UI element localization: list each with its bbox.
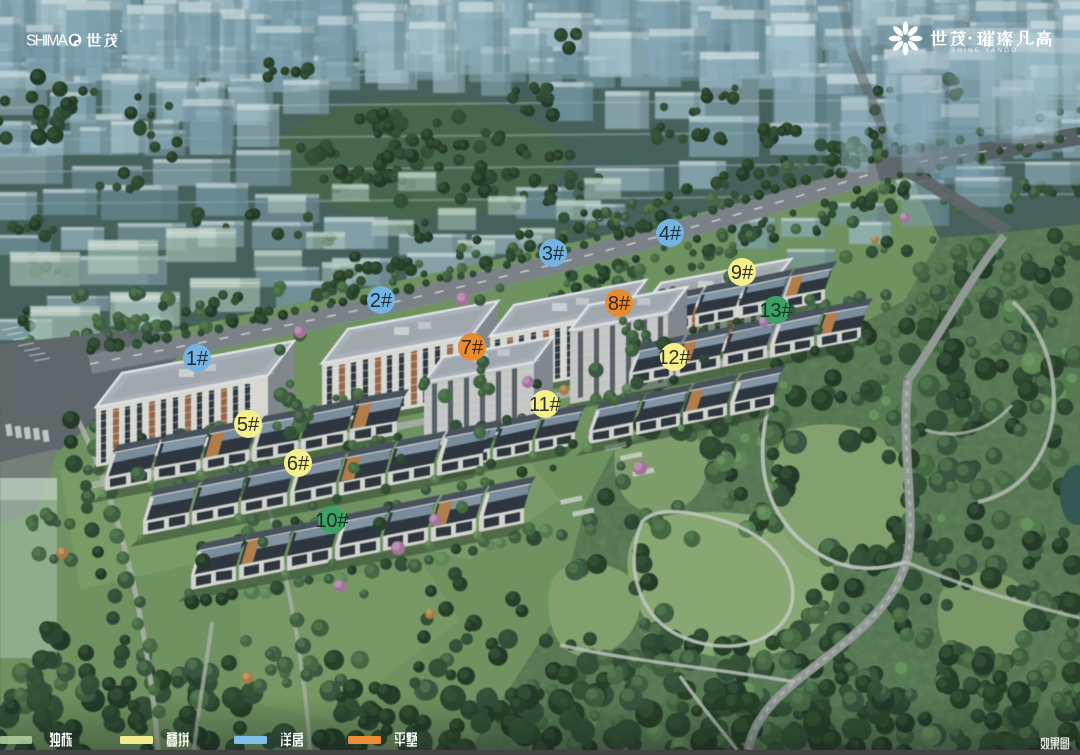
svg-text:9#: 9# (731, 262, 754, 284)
svg-text:13#: 13# (759, 300, 793, 322)
svg-text:SHIMA: SHIMA (26, 33, 69, 50)
svg-text:12#: 12# (657, 347, 691, 369)
svg-text:6#: 6# (287, 453, 310, 475)
svg-text:SHINE YANGO: SHINE YANGO (951, 47, 1018, 54)
svg-text:2#: 2# (370, 290, 393, 312)
svg-text:3#: 3# (542, 243, 565, 265)
svg-text:11#: 11# (529, 394, 562, 416)
svg-text:10#: 10# (315, 510, 349, 532)
svg-text:7#: 7# (461, 337, 484, 359)
svg-text:8#: 8# (608, 293, 631, 315)
svg-text:5#: 5# (237, 414, 260, 436)
svg-text:4#: 4# (659, 223, 682, 245)
svg-text:1#: 1# (186, 348, 209, 370)
